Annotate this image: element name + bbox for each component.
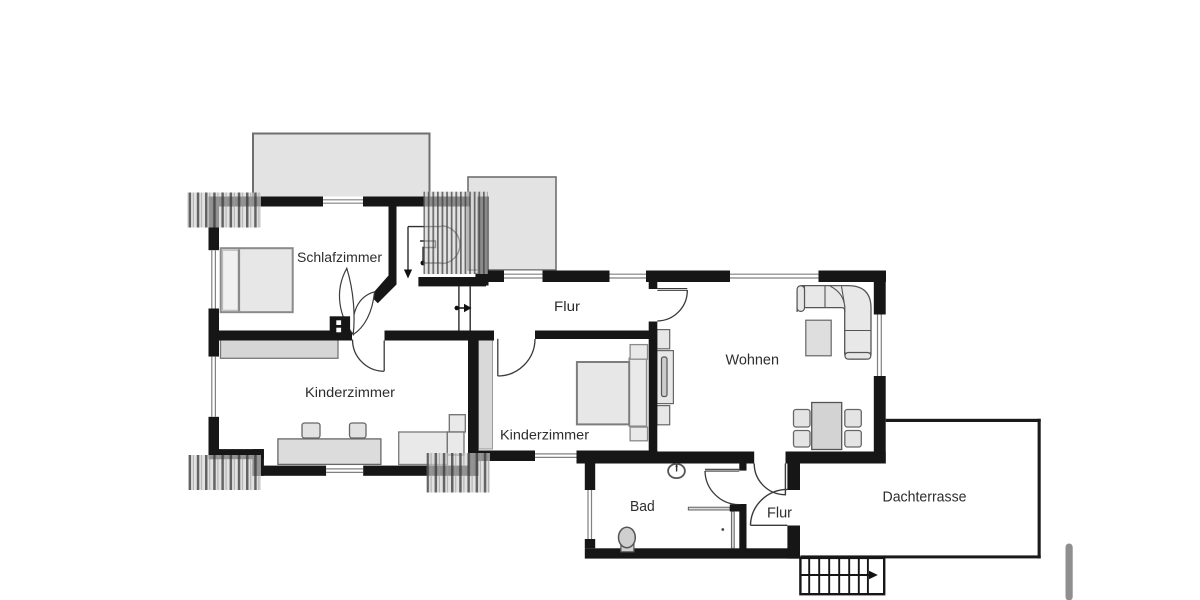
svg-text:Kinderzimmer: Kinderzimmer	[500, 428, 589, 444]
svg-text:Kinderzimmer: Kinderzimmer	[305, 385, 395, 401]
svg-text:Flur: Flur	[554, 299, 580, 315]
svg-text:Wohnen: Wohnen	[726, 352, 780, 368]
svg-text:Dachterrasse: Dachterrasse	[883, 489, 967, 505]
svg-text:Schlafzimmer: Schlafzimmer	[297, 250, 382, 266]
svg-text:Flur: Flur	[767, 506, 792, 522]
svg-text:Bad: Bad	[630, 499, 655, 515]
